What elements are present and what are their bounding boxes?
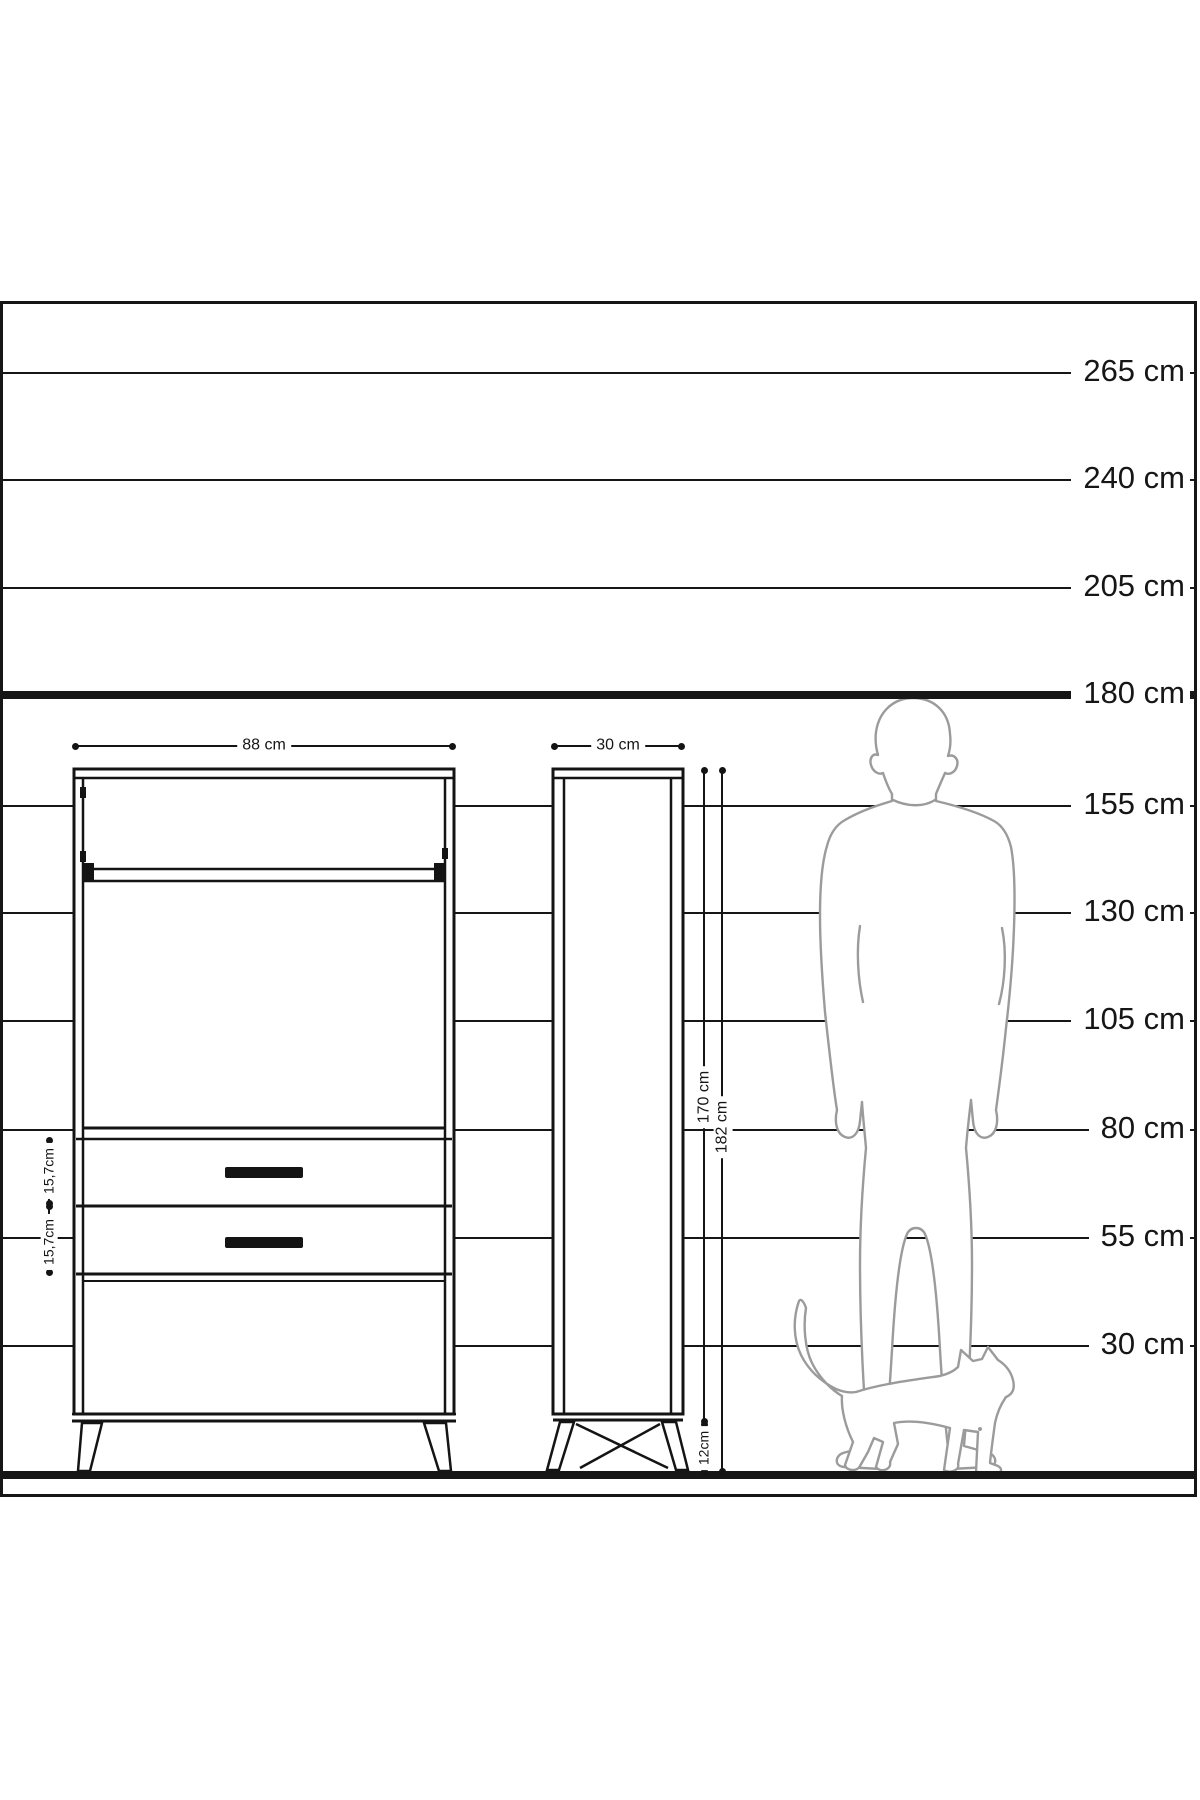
dim-label-carcass-170: 170 cm — [696, 1066, 715, 1128]
scale-label-205: 205 cm — [1071, 567, 1190, 606]
hinge-mark — [80, 851, 86, 862]
front-left-leg — [78, 1423, 102, 1471]
scale-label-55: 55 cm — [1089, 1217, 1190, 1256]
side-right-leg — [662, 1422, 688, 1470]
scale-label-155: 155 cm — [1071, 785, 1190, 824]
side-left-leg — [547, 1422, 574, 1470]
dim-label-total-182: 182 cm — [714, 1096, 733, 1158]
furniture-drawings — [0, 0, 1200, 1800]
flap-notch — [434, 863, 445, 882]
front-right-leg — [424, 1423, 451, 1471]
scale-label-130: 130 cm — [1071, 892, 1190, 931]
dim-label-depth-30: 30 cm — [591, 737, 645, 756]
dimension-diagram: 265 cm 240 cm 205 cm 180 cm 155 cm 130 c… — [0, 0, 1200, 1800]
scale-label-240: 240 cm — [1071, 459, 1190, 498]
cabinet-front-view — [72, 769, 456, 1471]
cabinet-side-view — [547, 769, 688, 1470]
drawer-handle — [225, 1167, 303, 1178]
scale-label-265: 265 cm — [1071, 352, 1190, 391]
scale-label-105: 105 cm — [1071, 1000, 1190, 1039]
floor-line-bold — [0, 1471, 1197, 1479]
dim-label-width-88: 88 cm — [237, 737, 291, 756]
dim-label-legs-12: 12cm — [696, 1426, 713, 1470]
dim-label-lower-drawer: 15,7cm — [41, 1214, 58, 1270]
flap-notch — [83, 863, 94, 882]
scale-label-80: 80 cm — [1089, 1109, 1190, 1148]
hinge-mark — [442, 848, 448, 859]
hinge-mark — [80, 787, 86, 798]
drawer-handle — [225, 1237, 303, 1248]
scale-label-180: 180 cm — [1071, 674, 1190, 713]
scale-label-30: 30 cm — [1089, 1325, 1190, 1364]
dim-label-upper-drawer: 15,7cm — [41, 1143, 58, 1199]
